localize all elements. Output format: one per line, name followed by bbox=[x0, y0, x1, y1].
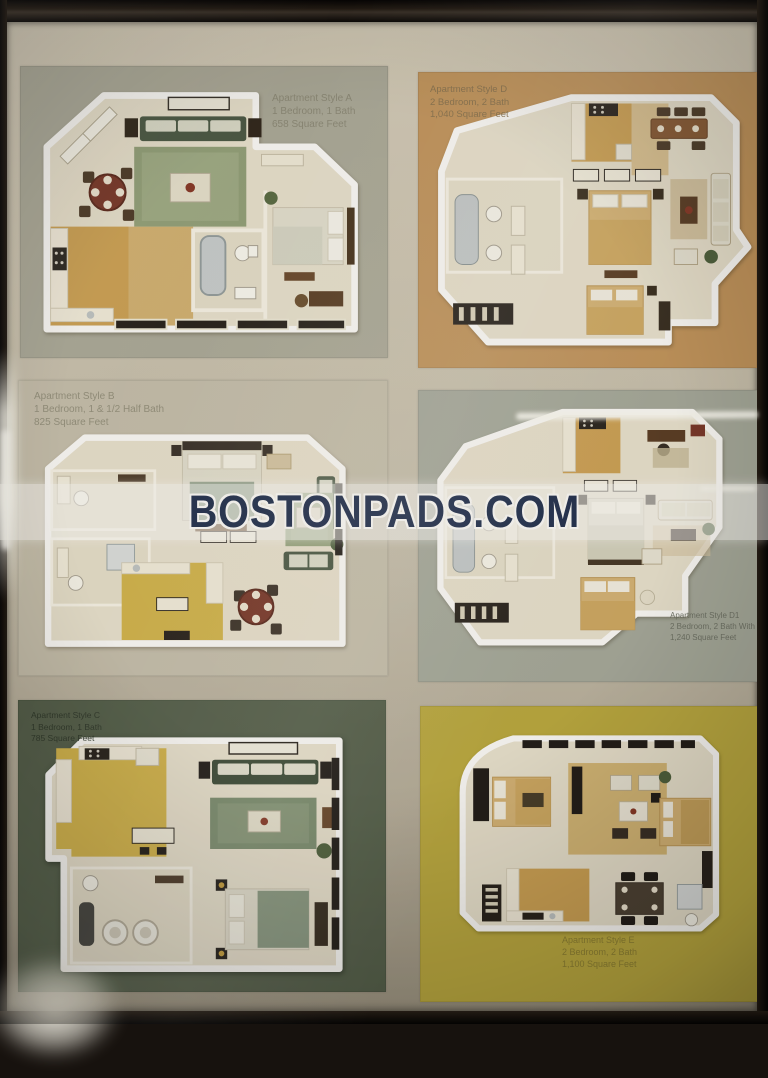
panel-label-line: 1,040 Square Feet bbox=[430, 109, 509, 122]
panel-label: Apartment Style D 2 Bedroom, 2 Bath 1,04… bbox=[430, 84, 509, 122]
framed-floor-plan-photo: Apartment Style A 1 Bedroom, 1 Bath 658 … bbox=[0, 0, 768, 1024]
panel-label-line: Apartment Style C bbox=[31, 710, 102, 722]
panel-label-line: 2 Bedroom, 2 Bath With Flex Space bbox=[670, 621, 768, 632]
panel-label-line: 1 Bedroom, 1 Bath bbox=[272, 105, 355, 118]
living-room-furniture bbox=[125, 97, 262, 226]
panel-label: Apartment Style A 1 Bedroom, 1 Bath 658 … bbox=[272, 92, 355, 131]
panel-label-line: 2 Bedroom, 2 Bath bbox=[562, 946, 637, 958]
bathroom-fixtures bbox=[71, 868, 191, 963]
watermark-band: BOSTONPADS.COM bbox=[0, 484, 768, 540]
floor-plan-panel-style-d: Apartment Style D 2 Bedroom, 2 Bath 1,04… bbox=[418, 72, 757, 368]
closet-comb bbox=[482, 884, 501, 921]
panel-label-line: 1 Bedroom, 1 & 1/2 Half Bath bbox=[34, 403, 164, 416]
bathroom-fixtures bbox=[193, 230, 263, 310]
panel-label-line: Apartment Style A bbox=[272, 92, 355, 105]
panel-label-line: Apartment Style E bbox=[562, 934, 637, 946]
panel-label: Apartment Style C 1 Bedroom, 1 Bath 785 … bbox=[31, 710, 102, 745]
closet-comb bbox=[453, 303, 513, 324]
panel-label-line: 1 Bedroom, 1 Bath bbox=[31, 722, 102, 734]
panel-label-line: Apartment Style B bbox=[34, 390, 164, 403]
watermark-text: BOSTONPADS.COM bbox=[188, 486, 579, 538]
picture-frame-top bbox=[0, 0, 768, 22]
bedroom-one-furniture bbox=[473, 768, 550, 826]
panel-label: Apartment Style D1 2 Bedroom, 2 Bath Wit… bbox=[670, 610, 768, 643]
bedroom-one-furniture bbox=[577, 189, 663, 278]
panel-label-line: Apartment Style D bbox=[430, 84, 509, 97]
panel-label-line: 1,100 Square Feet bbox=[562, 958, 637, 970]
kitchen-fixtures bbox=[56, 746, 174, 856]
picture-frame-bottom bbox=[0, 1011, 768, 1024]
panel-label-line: 1,240 Square Feet bbox=[670, 632, 768, 643]
window-strips bbox=[332, 758, 340, 950]
panel-label-line: 658 Square Feet bbox=[272, 118, 355, 131]
floor-plan-panel-style-e: Apartment Style E 2 Bedroom, 2 Bath 1,10… bbox=[420, 706, 758, 1002]
closet-shelves bbox=[573, 169, 660, 181]
floor-plan-panel-style-a: Apartment Style A 1 Bedroom, 1 Bath 658 … bbox=[20, 66, 388, 358]
panel-label-line: 2 Bedroom, 2 Bath bbox=[430, 97, 509, 110]
closet-comb bbox=[455, 603, 509, 623]
bathroom-fixtures bbox=[447, 179, 561, 274]
panel-label-line: 785 Square Feet bbox=[31, 733, 102, 745]
panel-label-line: 825 Square Feet bbox=[34, 416, 164, 429]
floor-plan-panel-style-c: Apartment Style C 1 Bedroom, 1 Bath 785 … bbox=[18, 700, 386, 992]
panel-label: Apartment Style B 1 Bedroom, 1 & 1/2 Hal… bbox=[34, 390, 164, 429]
panel-label: Apartment Style E 2 Bedroom, 2 Bath 1,10… bbox=[562, 934, 637, 970]
panel-label-line: Apartment Style D1 bbox=[670, 610, 768, 621]
kitchen-fixtures bbox=[122, 563, 223, 640]
